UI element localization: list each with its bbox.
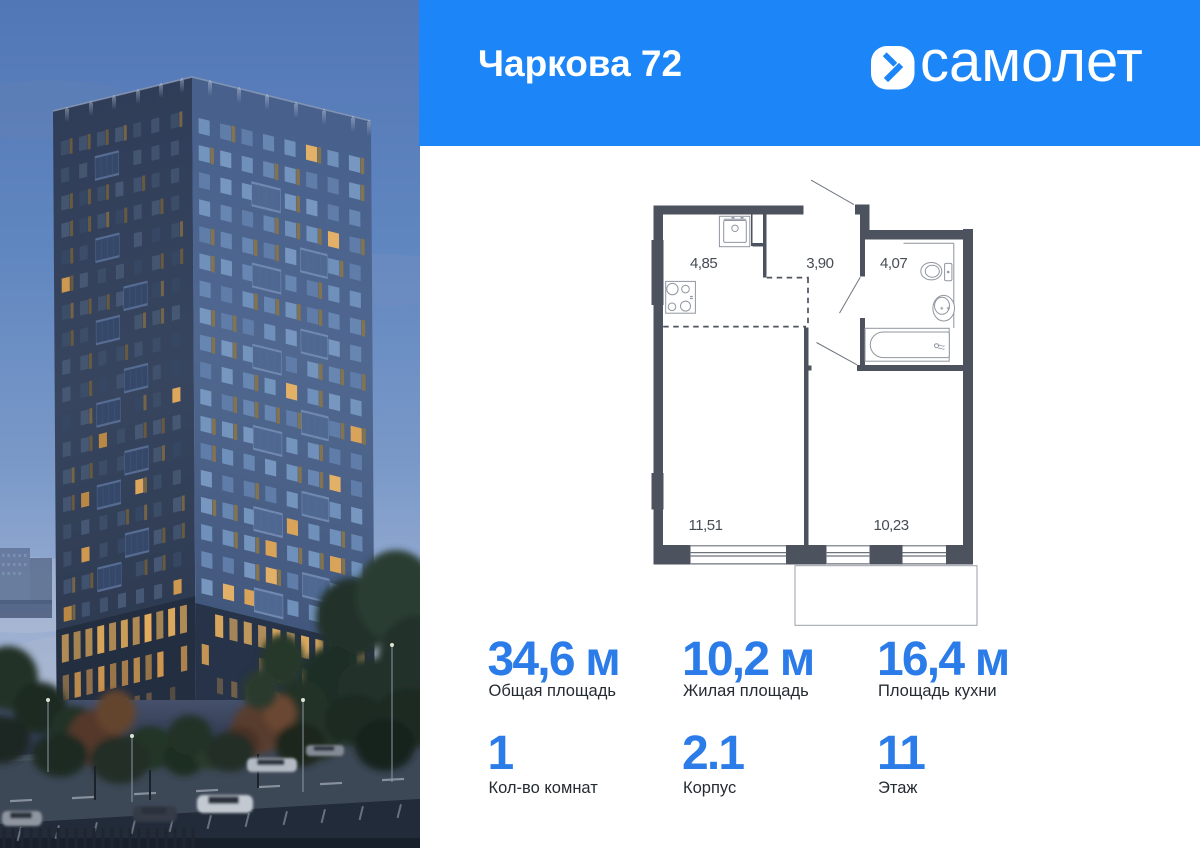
- svg-text:4,85: 4,85: [690, 255, 717, 272]
- svg-text:3,90: 3,90: [806, 255, 833, 272]
- svg-text:4,07: 4,07: [880, 255, 907, 272]
- svg-text:11,51: 11,51: [689, 517, 723, 534]
- svg-text:10,23: 10,23: [874, 517, 909, 534]
